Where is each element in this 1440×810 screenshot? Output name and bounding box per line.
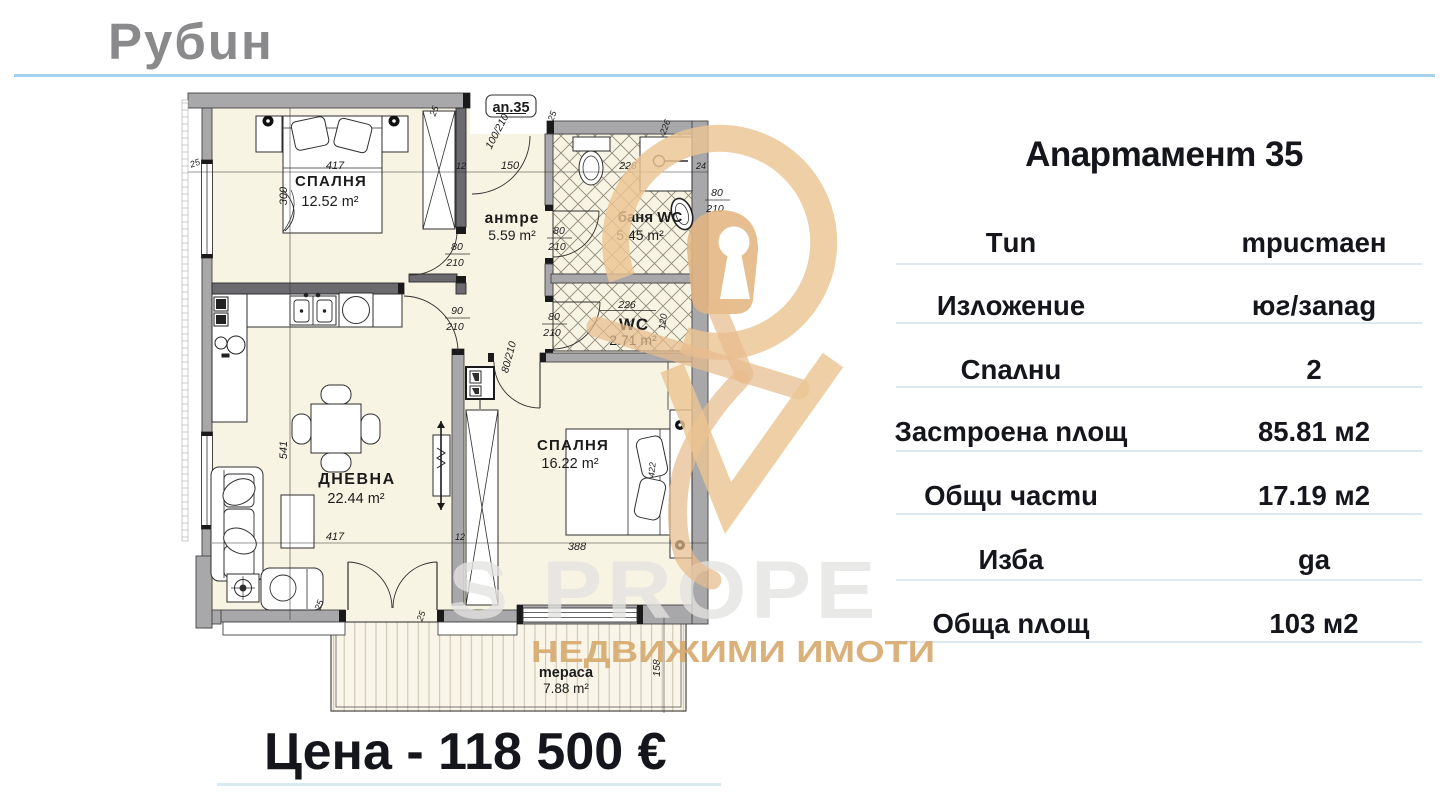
svg-text:210: 210	[445, 257, 464, 269]
svg-text:5.59 m²: 5.59 m²	[488, 227, 536, 243]
svg-text:150: 150	[501, 160, 520, 172]
svg-text:417: 417	[326, 531, 345, 543]
svg-text:СПАЛНЯ: СПАЛНЯ	[295, 173, 367, 190]
svg-text:210: 210	[547, 241, 566, 253]
svg-text:12: 12	[455, 532, 465, 542]
svg-text:80: 80	[553, 225, 565, 237]
svg-text:417: 417	[326, 160, 345, 172]
svg-text:210: 210	[445, 321, 464, 333]
svg-text:80: 80	[711, 187, 723, 199]
svg-text:24: 24	[695, 161, 706, 171]
svg-text:80: 80	[451, 241, 463, 253]
svg-text:12: 12	[456, 161, 466, 171]
svg-text:90: 90	[451, 305, 463, 317]
svg-text:ДНЕВНА: ДНЕВНА	[318, 471, 395, 488]
svg-text:226: 226	[617, 299, 636, 311]
svg-text:22.44 m²: 22.44 m²	[327, 491, 384, 507]
svg-text:НЕДВИЖИМИ ИМОТИ: НЕДВИЖИМИ ИМОТИ	[531, 634, 935, 669]
svg-text:12.52 m²: 12.52 m²	[301, 194, 358, 210]
svg-text:120: 120	[657, 312, 670, 330]
svg-text:S PROPE: S PROPE	[448, 545, 880, 636]
svg-text:300: 300	[278, 186, 290, 205]
svg-text:СПАЛНЯ: СПАЛНЯ	[537, 437, 609, 454]
svg-text:80: 80	[548, 311, 560, 323]
svg-text:422: 422	[646, 462, 657, 478]
svg-text:7.88 m²: 7.88 m²	[543, 681, 589, 696]
svg-text:анmре: анmре	[485, 210, 540, 227]
svg-text:16.22 m²: 16.22 m²	[541, 456, 598, 472]
svg-text:541: 541	[278, 441, 290, 459]
svg-text:25: 25	[188, 156, 203, 170]
svg-text:210: 210	[542, 327, 561, 339]
